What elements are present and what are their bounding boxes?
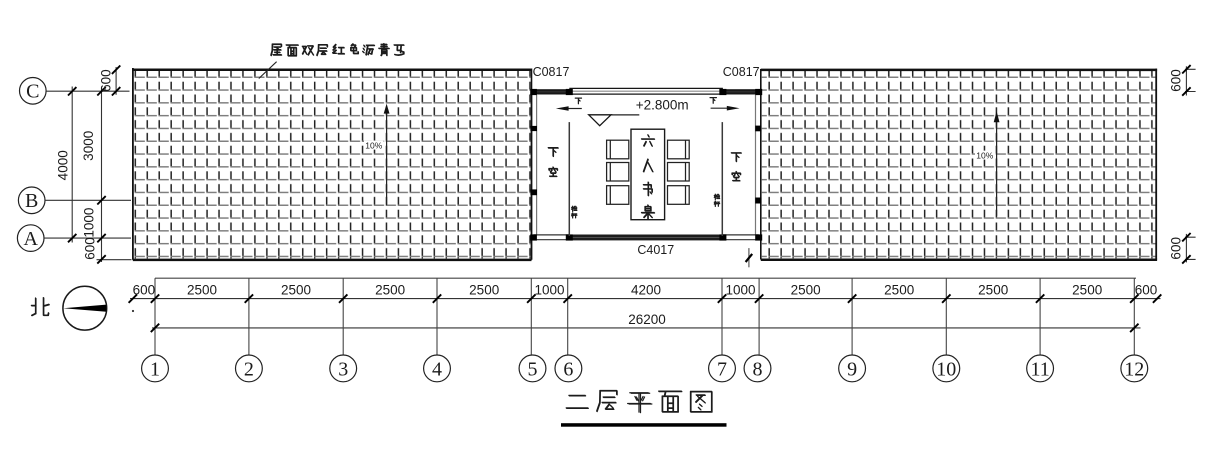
svg-text:5: 5	[528, 358, 538, 380]
svg-text:7: 7	[717, 358, 727, 380]
svg-text:600: 600	[83, 237, 98, 260]
svg-text:B: B	[25, 190, 38, 212]
svg-text:6: 6	[563, 358, 573, 380]
svg-text:600: 600	[1169, 69, 1184, 92]
svg-text:2500: 2500	[884, 283, 914, 298]
svg-text:8: 8	[753, 358, 763, 380]
svg-text:2500: 2500	[469, 283, 499, 298]
svg-text:C0817: C0817	[533, 65, 570, 79]
svg-text:4000: 4000	[55, 150, 70, 180]
svg-text:2: 2	[244, 358, 254, 380]
svg-text:2500: 2500	[791, 283, 821, 298]
svg-text:9: 9	[847, 358, 857, 380]
svg-text:600: 600	[1135, 283, 1158, 298]
svg-text:C: C	[26, 81, 39, 103]
svg-text:2500: 2500	[187, 283, 217, 298]
svg-text:1: 1	[150, 358, 160, 380]
svg-text:2500: 2500	[281, 283, 311, 298]
svg-text:2500: 2500	[1072, 283, 1102, 298]
svg-text:4: 4	[432, 358, 442, 380]
svg-text:26200: 26200	[628, 312, 666, 327]
svg-text:12: 12	[1124, 358, 1144, 380]
svg-text:10%: 10%	[976, 151, 993, 161]
svg-text:C0817: C0817	[723, 65, 760, 79]
svg-text:600: 600	[99, 69, 114, 92]
svg-text:10%: 10%	[365, 141, 382, 151]
svg-text:600: 600	[1169, 237, 1184, 260]
svg-text:2500: 2500	[375, 283, 405, 298]
svg-text:10: 10	[936, 358, 956, 380]
svg-text:A: A	[23, 228, 38, 250]
svg-text:2500: 2500	[978, 283, 1008, 298]
svg-text:3000: 3000	[81, 131, 96, 161]
svg-text:+2.800m: +2.800m	[636, 98, 689, 113]
svg-text:1000: 1000	[534, 283, 564, 298]
svg-text:4200: 4200	[631, 283, 661, 298]
svg-text:3: 3	[338, 358, 348, 380]
svg-text:1000: 1000	[725, 283, 755, 298]
svg-text:11: 11	[1030, 358, 1049, 380]
svg-text:C4017: C4017	[637, 243, 674, 257]
svg-text:600: 600	[133, 283, 156, 298]
svg-text:1000: 1000	[82, 208, 97, 238]
